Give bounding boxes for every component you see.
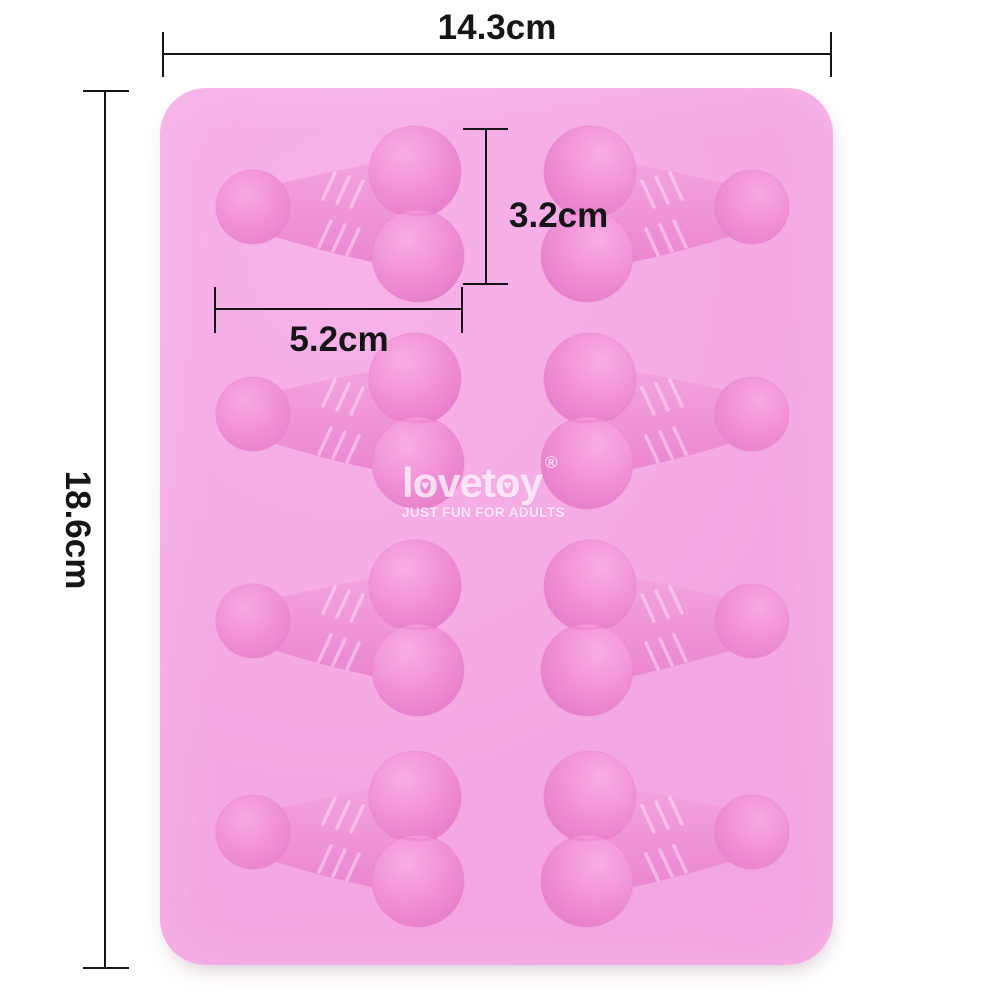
logo-letters: vet [437,459,495,506]
width-dimension-tick-left [162,32,164,77]
product-dimension-diagram: 14.3cm 18.6cm 3.2cm 5.2cm lo♥veto♥y® JUS… [0,0,1000,1000]
heart-icon: ♥ [421,478,429,492]
width-dimension-label: 14.3cm [438,8,557,48]
cavity-height-dimension-tick-top [463,128,508,130]
cavity-width-dimension-line [215,308,463,310]
cavity-height-dimension-label: 3.2cm [509,196,608,236]
cavity-width-dimension-label: 5.2cm [289,320,388,360]
mold-cavity [215,749,465,929]
logo-letter: l [402,459,413,506]
width-dimension-tick-right [830,32,832,77]
height-dimension-label: 18.6cm [57,471,97,590]
width-dimension-line [162,53,832,55]
cavity-height-dimension-tick-bottom [463,283,508,285]
brand-logo: lo♥veto♥y® JUST FUN FOR ADULTS [402,462,565,520]
mold-cavity [215,538,465,718]
logo-letter-o-with-heart: o♥ [495,462,520,504]
height-dimension-line [104,90,106,969]
height-dimension-tick-top [83,90,129,92]
brand-logo-wordmark: lo♥veto♥y® [402,462,565,504]
cavity-width-dimension-tick-right [461,287,463,333]
mold-cavity [540,538,790,718]
mold-cavity [215,124,465,304]
cavity-height-dimension-line [485,129,487,285]
heart-icon: ♥ [503,478,511,492]
brand-tagline: JUST FUN FOR ADULTS [402,506,565,520]
mold-cavity [540,749,790,929]
height-dimension-tick-bottom [83,967,129,969]
logo-letter-o-with-heart: o♥ [413,462,438,504]
logo-letter: y [520,459,542,506]
mold-cavity [540,331,790,511]
registered-trademark-icon: ® [545,453,558,472]
cavity-width-dimension-tick-left [214,287,216,333]
